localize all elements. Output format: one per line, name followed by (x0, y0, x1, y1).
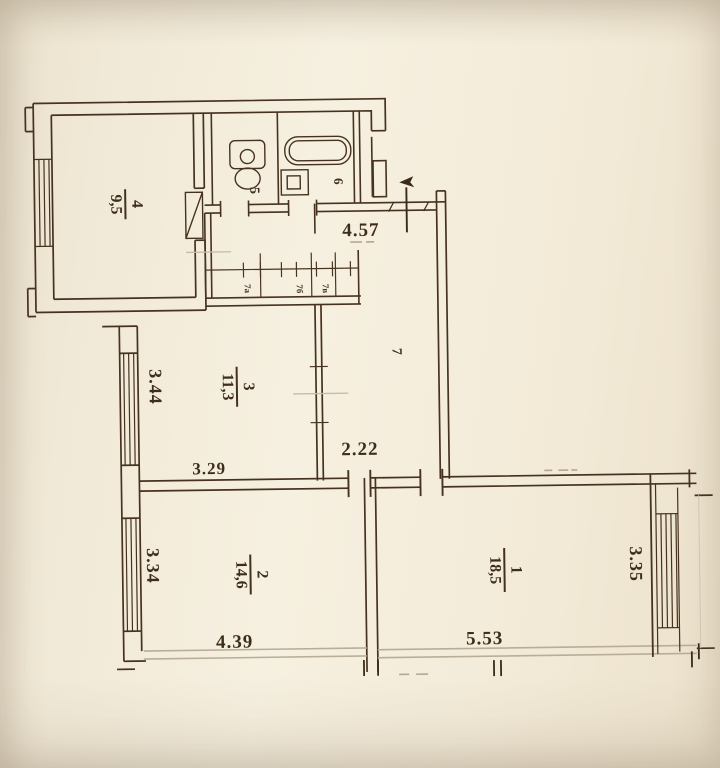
room-6-label: 6 (330, 178, 346, 185)
entrance-arrow-icon (399, 176, 414, 187)
dim-room1-width: 5.53 (466, 628, 504, 651)
kitchen-door (185, 192, 203, 238)
faint-lines (186, 250, 348, 395)
room-5-label: 5 (245, 187, 261, 194)
room-7-label: 7 (388, 348, 404, 355)
faint-marks (350, 239, 580, 675)
plan-tilt-wrapper: 4 9,5 3 11,3 2 14,6 1 18,5 5 6 7 7а 7б 7… (0, 0, 720, 768)
dim-room3-depth: 3.44 (144, 369, 165, 405)
room-4-area: 9,5 (107, 194, 124, 214)
floor-plan-drawing (0, 0, 720, 768)
dim-corridor-width: 2.22 (341, 439, 379, 462)
kitchen-walls (25, 99, 388, 317)
room-3-number: 3 (239, 382, 256, 390)
room-2-fraction-bar (249, 555, 252, 595)
room-3-fraction-bar (236, 367, 239, 407)
corridor-walls (309, 304, 329, 480)
left-windows (124, 353, 138, 631)
entrance-wall (436, 191, 449, 479)
bathtub-icon (285, 136, 351, 165)
dim-room3-width: 3.29 (192, 459, 226, 479)
room-2-area: 14,6 (232, 561, 249, 589)
dim-room2-width: 4.39 (216, 632, 254, 655)
room-1-number: 1 (507, 566, 524, 574)
room-divider-wall (364, 478, 378, 672)
dim-hall-top: 4.57 (342, 220, 380, 243)
dim-room1-depth: 3.35 (625, 546, 646, 582)
kitchen-window (34, 159, 53, 246)
bathroom-walls (203, 110, 446, 235)
room-2-label: 2 14,6 (232, 554, 270, 595)
balcony (650, 469, 715, 657)
dim-room2-depth: 3.34 (142, 548, 163, 584)
room-1-label: 1 18,5 (486, 548, 524, 593)
closet-7c-label: 7в (321, 284, 331, 294)
toilet-icon (230, 140, 266, 189)
floor-plan-photo: 4 9,5 3 11,3 2 14,6 1 18,5 5 6 7 7а 7б 7… (0, 0, 720, 768)
sink-icon (281, 170, 308, 195)
room-2-number: 2 (253, 570, 270, 578)
closet-dim-line (206, 252, 359, 298)
closet-7b-label: 7б (295, 284, 305, 293)
room-1-fraction-bar (503, 548, 506, 592)
closet-walls (205, 211, 361, 306)
room-3-area: 11,3 (218, 373, 235, 400)
room-4-label: 4 9,5 (107, 189, 145, 220)
room-4-fraction-bar (124, 189, 126, 219)
room-1-area: 18,5 (486, 556, 503, 584)
room-4-number: 4 (127, 200, 144, 208)
closet-7a-label: 7а (243, 284, 253, 293)
room-3-label: 3 11,3 (218, 366, 256, 407)
